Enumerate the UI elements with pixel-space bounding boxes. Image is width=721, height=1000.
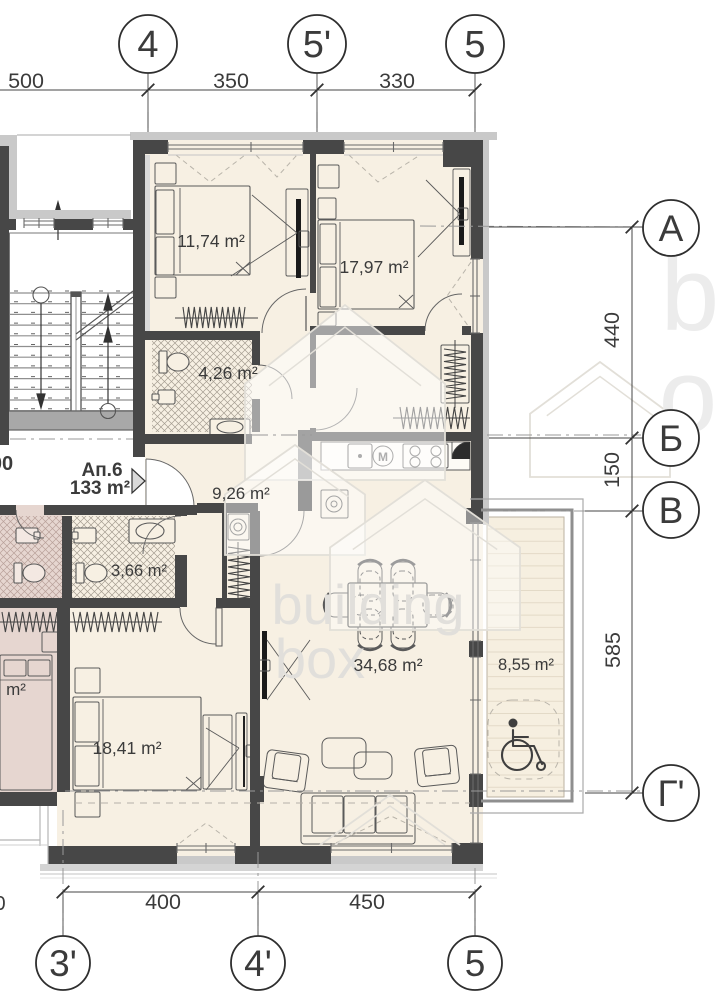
svg-text:34,68 m²: 34,68 m²: [353, 655, 422, 675]
svg-text:350: 350: [213, 69, 249, 93]
svg-text:133 m²: 133 m²: [70, 478, 130, 499]
svg-text:3,66 m²: 3,66 m²: [111, 562, 167, 580]
svg-text:В: В: [659, 490, 684, 531]
svg-text:5: 5: [465, 943, 486, 984]
svg-text:00: 00: [0, 453, 13, 475]
svg-text:5: 5: [464, 24, 485, 66]
svg-text:3': 3': [49, 943, 77, 984]
svg-text:400: 400: [145, 890, 181, 914]
svg-text:330: 330: [379, 69, 415, 93]
svg-text:4: 4: [137, 24, 158, 66]
svg-text:585: 585: [601, 632, 625, 668]
svg-text:4,26 m²: 4,26 m²: [198, 363, 257, 383]
svg-text:Б: Б: [659, 418, 683, 459]
svg-text:8,55 m²: 8,55 m²: [498, 656, 554, 674]
svg-text:Г': Г': [657, 773, 684, 814]
svg-text:18,41 m²: 18,41 m²: [92, 738, 161, 758]
svg-text:m²: m²: [6, 680, 26, 699]
svg-text:А: А: [659, 208, 684, 249]
svg-text:150: 150: [600, 452, 624, 488]
svg-text:9,26 m²: 9,26 m²: [212, 484, 270, 503]
svg-text:4': 4': [244, 943, 272, 984]
svg-text:17,97 m²: 17,97 m²: [339, 257, 408, 277]
svg-text:5': 5': [303, 24, 331, 66]
svg-text:440: 440: [600, 312, 624, 348]
svg-text:450: 450: [349, 890, 385, 914]
svg-text:500: 500: [8, 69, 44, 93]
svg-text:box: box: [275, 627, 365, 690]
svg-text:11,74 m²: 11,74 m²: [177, 231, 245, 251]
svg-text:0: 0: [0, 893, 6, 915]
